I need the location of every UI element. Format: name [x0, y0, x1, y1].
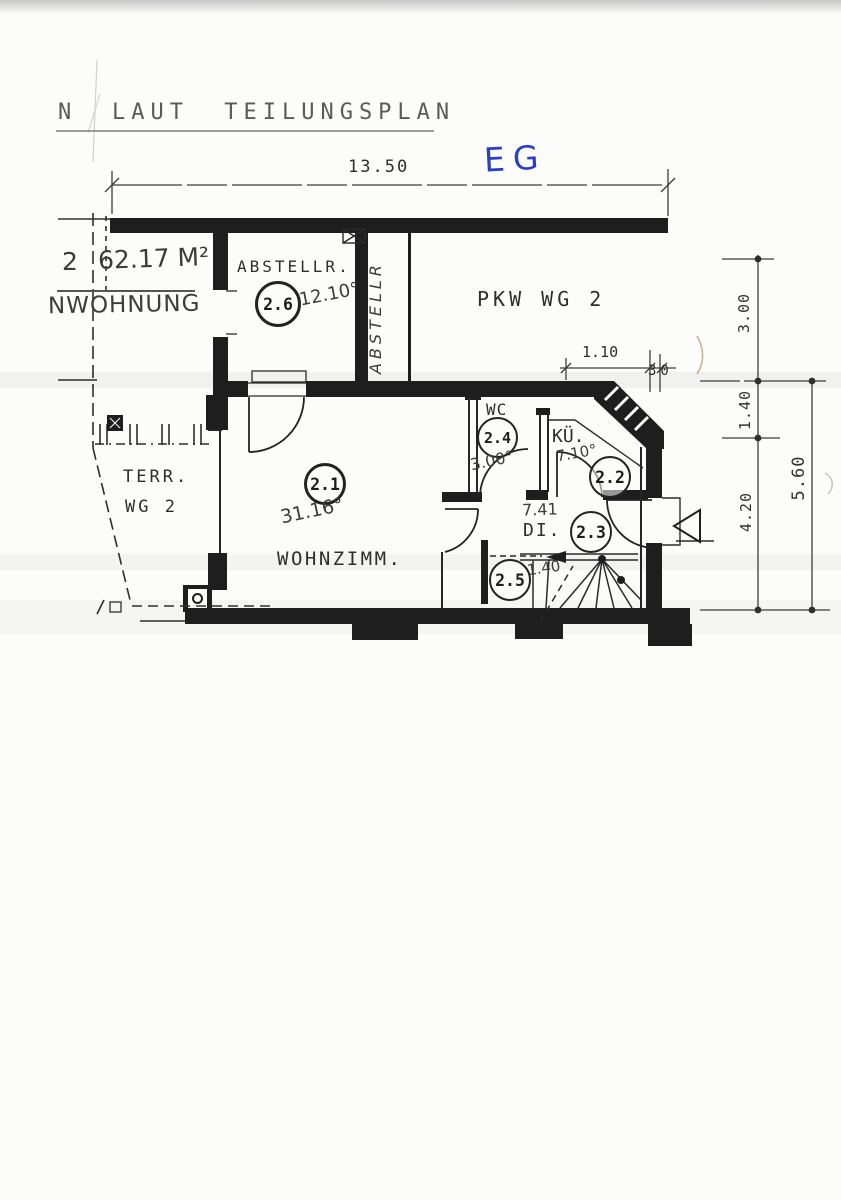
plan-title-part1: N: [58, 100, 77, 125]
unit-area: 62.17 M²: [98, 242, 210, 275]
room-nook-number: 2.5: [489, 559, 531, 601]
room-hall-number: 2.3: [570, 511, 612, 553]
dimension-dots: [755, 256, 816, 614]
stair-newel-dot2: [617, 576, 625, 584]
right-dim-4-20: 4.20: [737, 492, 755, 532]
right-dim-3-00: 3.00: [735, 293, 753, 333]
room-storage-number: 2.6: [255, 281, 301, 327]
creases: [88, 60, 100, 162]
dim-30-label: 30: [648, 363, 673, 379]
floor-label-eg: EG: [483, 137, 547, 179]
room-storage-label: ABSTELLR.: [237, 257, 351, 276]
walls: [110, 218, 692, 646]
parking-label: PKW WG 2: [477, 287, 605, 311]
stair-newel-dot: [598, 555, 606, 563]
column-symbol: [188, 589, 207, 608]
plan-title-underline: [56, 130, 434, 132]
entrance-arrow-icon: [674, 510, 700, 542]
terrace-label-line2: WG 2: [125, 497, 178, 517]
room-hall-area: 7.41: [522, 499, 558, 519]
room-living-label: WOHNZIMM.: [277, 548, 402, 570]
scanned-floorplan-page: N LAUT TEILUNGSPLAN 13.50 EG 2 62.17 M² …: [0, 0, 841, 1200]
unit-number: 2: [62, 247, 78, 276]
dim-110-label: 1.10: [582, 343, 618, 361]
room-hall-label: DI.: [523, 520, 562, 541]
terrace-post: [107, 415, 123, 431]
storage-vertical-label: ABSTELLR: [366, 238, 385, 374]
entrance-recess: [662, 498, 714, 545]
plan-title-part2: LAUT TEILUNGSPLAN: [112, 100, 455, 125]
top-dimension-label: 13.50: [348, 157, 409, 177]
terrace-label-line1: TERR.: [123, 467, 189, 487]
unit-name: NWOHNUNG: [48, 291, 201, 320]
right-dim-5-60: 5.60: [789, 456, 809, 501]
room-kitchen-number: 2.2: [589, 456, 631, 498]
right-dim-1-40: 1.40: [736, 390, 754, 430]
